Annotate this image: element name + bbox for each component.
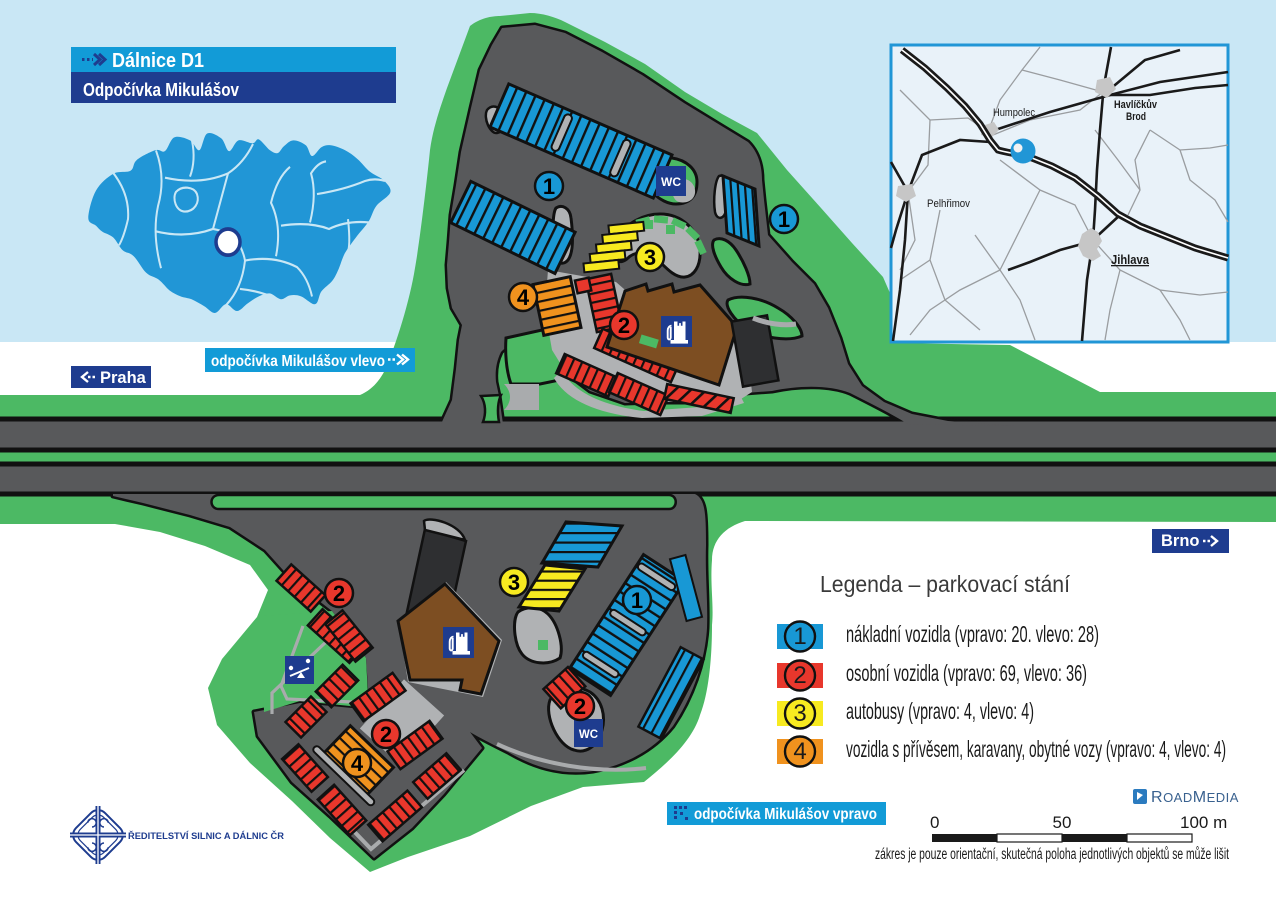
svg-text:Praha: Praha (100, 369, 147, 387)
svg-text:Brod: Brod (1126, 111, 1146, 123)
svg-text:Jihlava: Jihlava (1111, 252, 1150, 267)
svg-text:2: 2 (380, 722, 392, 747)
svg-text:Odpočívka Mikulášov: Odpočívka Mikulášov (83, 80, 239, 100)
svg-text:Legenda – parkovací stání: Legenda – parkovací stání (820, 571, 1070, 597)
svg-text:4: 4 (517, 285, 530, 310)
svg-text:3: 3 (508, 570, 520, 595)
svg-text:odpočívka Mikulášov vpravo: odpočívka Mikulášov vpravo (694, 806, 877, 823)
svg-text:vozidla s přívěsem, karavany,: vozidla s přívěsem, karavany, obytné voz… (846, 736, 1226, 762)
svg-text:4: 4 (351, 751, 364, 776)
svg-text:Dálnice D1: Dálnice D1 (112, 50, 204, 72)
svg-text:4: 4 (793, 738, 806, 765)
svg-text:1: 1 (778, 207, 790, 232)
svg-text:3: 3 (644, 245, 656, 270)
svg-text:odpočívka Mikulášov vlevo: odpočívka Mikulášov vlevo (211, 353, 385, 370)
svg-text:2: 2 (618, 313, 630, 338)
svg-text:1: 1 (543, 174, 555, 199)
svg-text:osobní vozidla (vpravo: 69, vl: osobní vozidla (vpravo: 69, vlevo: 36) (846, 660, 1087, 686)
svg-text:WC: WC (661, 175, 681, 189)
svg-text:nákladní vozidla (vpravo: 20.: nákladní vozidla (vpravo: 20. vlevo: 28) (846, 621, 1099, 647)
svg-text:100 m: 100 m (1180, 813, 1227, 832)
svg-text:Brno: Brno (1161, 532, 1200, 550)
svg-text:50: 50 (1053, 813, 1072, 832)
svg-text:autobusy (vpravo: 4, vlevo: 4): autobusy (vpravo: 4, vlevo: 4) (846, 698, 1034, 724)
svg-text:3: 3 (793, 700, 806, 727)
svg-text:2: 2 (793, 662, 806, 689)
svg-text:Humpolec: Humpolec (993, 107, 1035, 119)
svg-text:Pelhřimov: Pelhřimov (927, 198, 970, 210)
svg-text:2: 2 (574, 694, 586, 719)
svg-text:1: 1 (793, 623, 806, 650)
svg-text:zákres je pouze orientační, sk: zákres je pouze orientační, skutečná pol… (875, 846, 1229, 863)
svg-text:WC: WC (579, 729, 598, 741)
svg-text:ŘEDITELSTVÍ SILNIC A DÁLNIC ČR: ŘEDITELSTVÍ SILNIC A DÁLNIC ČR (128, 830, 284, 842)
svg-text:2: 2 (333, 581, 345, 606)
svg-text:Havlíčkův: Havlíčkův (1114, 99, 1158, 111)
svg-text:ROADMEDIA: ROADMEDIA (1151, 789, 1239, 806)
svg-text:1: 1 (631, 588, 643, 613)
svg-text:0: 0 (930, 813, 939, 832)
